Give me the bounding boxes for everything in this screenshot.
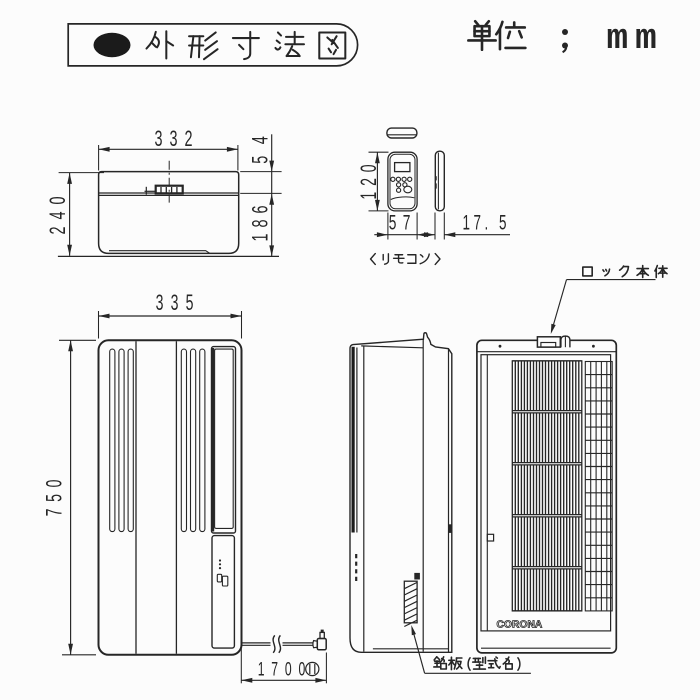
svg-text:240: 240 [46,190,71,235]
svg-text:335: 335 [156,290,201,315]
svg-text:CORONA: CORONA [497,620,543,631]
svg-text:120: 120 [356,158,381,199]
svg-text:17. 5: 17. 5 [463,210,510,234]
svg-text:mm: mm [607,18,664,59]
svg-text:332: 332 [155,127,200,152]
svg-text:1700: 1700 [258,660,312,680]
svg-text:750: 750 [41,473,66,516]
svg-text:186: 186 [248,199,273,241]
svg-text:54: 54 [248,125,273,164]
svg-text:57: 57 [389,210,417,234]
